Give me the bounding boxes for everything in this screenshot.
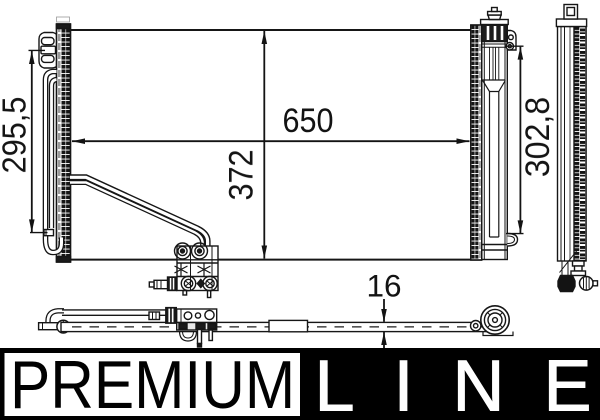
svg-text:16: 16 [366, 268, 401, 304]
svg-text:372: 372 [222, 149, 260, 200]
svg-text:295,5: 295,5 [0, 97, 33, 174]
svg-text:PREMIUM: PREMIUM [10, 347, 295, 420]
svg-text:LINE: LINE [315, 347, 600, 420]
svg-text:302,8: 302,8 [519, 97, 557, 177]
svg-text:650: 650 [282, 102, 333, 140]
